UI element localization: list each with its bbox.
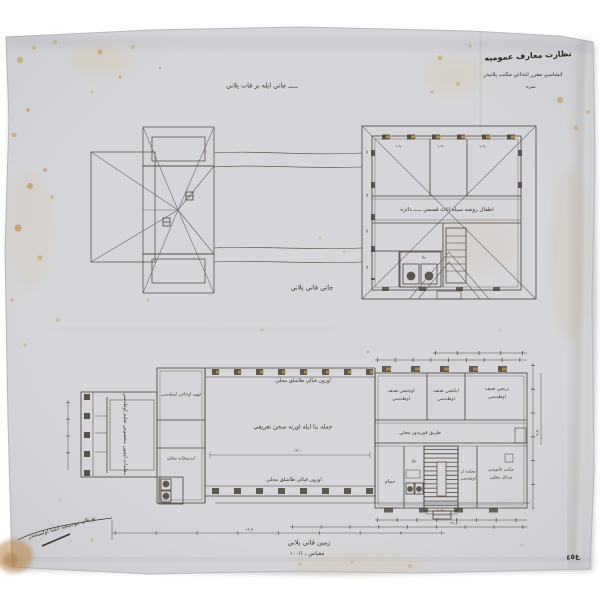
caption-top: ـــــ چاتي ايله بر قات پلاني: [226, 82, 298, 89]
header-subtitle: انشاسي مقرر ابتدائي مكتب پلانيدر: [483, 72, 562, 78]
classroom-label: ايكنجي صنف: [433, 389, 459, 395]
left-room-label: معلمات ايچون مخصوص تعليم اوطه‌سي: [121, 393, 127, 475]
classroom-label: اوچنجي صنف: [387, 389, 414, 395]
dim-wing: ٩،٥٠: [536, 428, 541, 436]
hammam-label: حمام: [385, 480, 396, 486]
window-dim: ١،٩٠: [395, 145, 403, 150]
side-dim: ٥: [366, 193, 368, 198]
classroom-label: برنجي صنف: [485, 387, 509, 393]
blueprint-artwork: [0, 0, 600, 600]
tower-room-bottom-label: ابدستخانه محلي: [167, 458, 196, 463]
dim-stair: ٤،٥٠: [437, 509, 445, 514]
right-room-b-label: مدخل محلي: [490, 475, 512, 480]
dim-total: ٢٢،٨٠: [450, 522, 460, 527]
paper: [0, 27, 595, 574]
caption-scale: مقياس ـ ١٠٠/١: [290, 551, 325, 557]
classroom-label: اوطه‌سي: [392, 397, 410, 403]
dim-left: ١٨،٥٠: [245, 528, 255, 533]
caption-roof-floor: چاتي قاتي پلاني: [291, 284, 334, 291]
classroom-label: اوطه‌سي: [488, 395, 506, 401]
corridor-label: طريق قوريدور محلي: [399, 431, 441, 437]
header-number: نمره: [526, 85, 536, 91]
upper-wc-label: حلا: [422, 256, 427, 261]
tower-room-top-label: قهوه اوجاغي اوطه‌سي: [161, 394, 201, 399]
upper-corridor-label: اطفال روضه سيله اناث قسمي ـــــ دائره: [400, 207, 494, 213]
side-dim: ٥: [366, 150, 368, 155]
window-dim: ١،٩٠: [437, 145, 445, 150]
dim-hall-width: ١٨،٠: [294, 448, 303, 453]
window-dim: ١،٩٠: [479, 145, 487, 150]
right-room-a-label: معلمه لر: [460, 470, 475, 475]
caption-ground-floor: زمين قاتي پلاني: [288, 539, 331, 546]
classroom-label: اوطه‌سي: [437, 397, 455, 403]
veranda-top-label: اوزون قپالي طاشلق محلي: [275, 379, 330, 385]
side-dim: ٥: [366, 229, 368, 234]
scanned-blueprint-sheet: نظارت معارف عموميه انشاسي مقرر ابتدائي م…: [0, 0, 600, 600]
veranda-bottom-label: اوزون قپالي طاشلق محلي: [266, 478, 321, 484]
hall-label: جمله بنا ايله اورته صحن تعريفي: [253, 425, 332, 432]
wc-label: حلا: [411, 461, 416, 466]
right-room-a-label: اوطه‌سي: [460, 477, 476, 482]
right-room-b-label: مكتب قاپوسي: [488, 467, 514, 472]
side-dim: ٥: [366, 265, 368, 270]
